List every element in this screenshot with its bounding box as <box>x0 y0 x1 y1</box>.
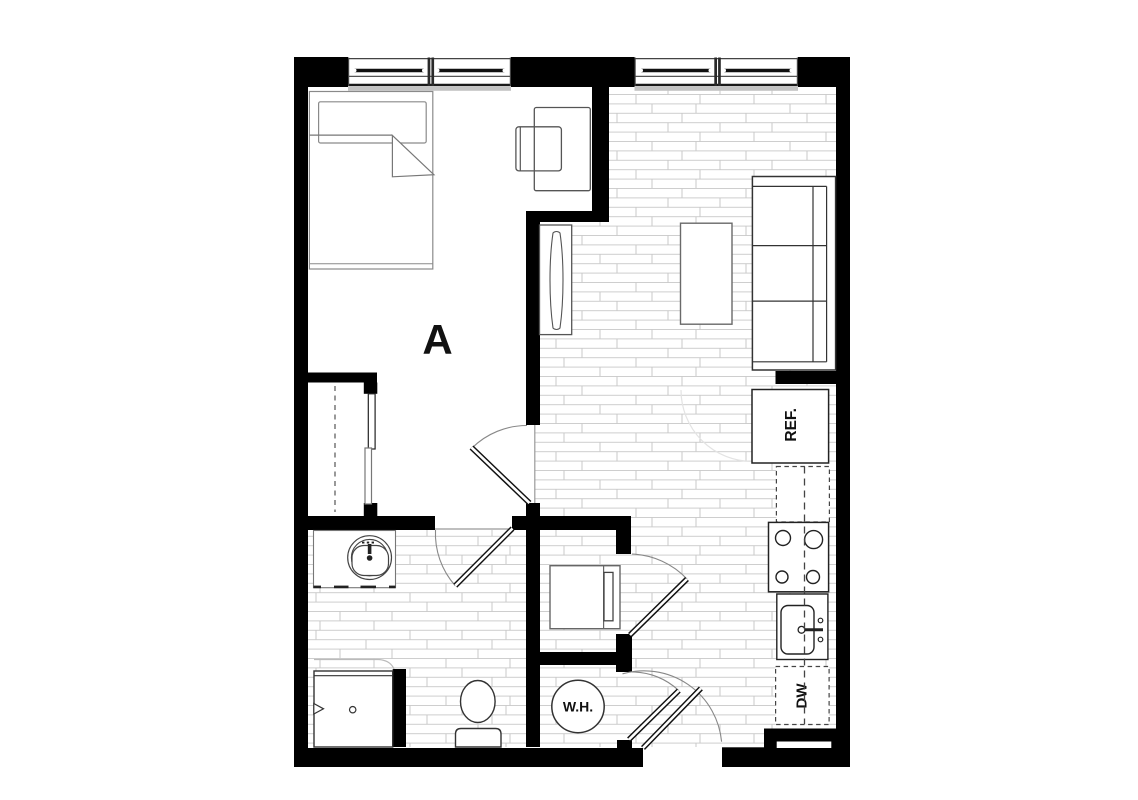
svg-text:A: A <box>422 316 452 363</box>
svg-text:W.H.: W.H. <box>563 699 593 715</box>
svg-text:DW: DW <box>794 683 811 709</box>
svg-text:REF.: REF. <box>783 408 800 442</box>
